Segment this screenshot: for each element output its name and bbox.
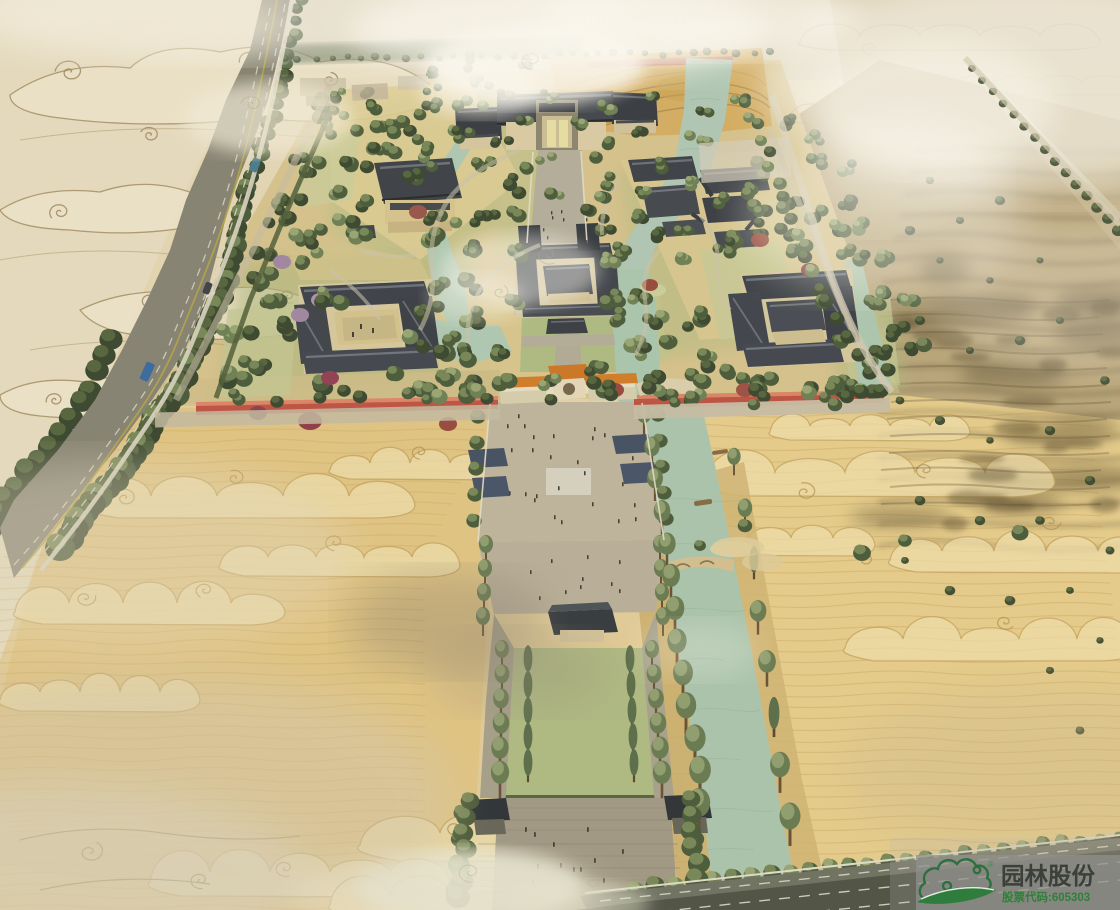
svg-text:园林股份: 园林股份 <box>1001 863 1095 889</box>
svg-text:®: ® <box>988 860 994 869</box>
svg-text:股票代码:605303: 股票代码:605303 <box>1002 890 1090 904</box>
